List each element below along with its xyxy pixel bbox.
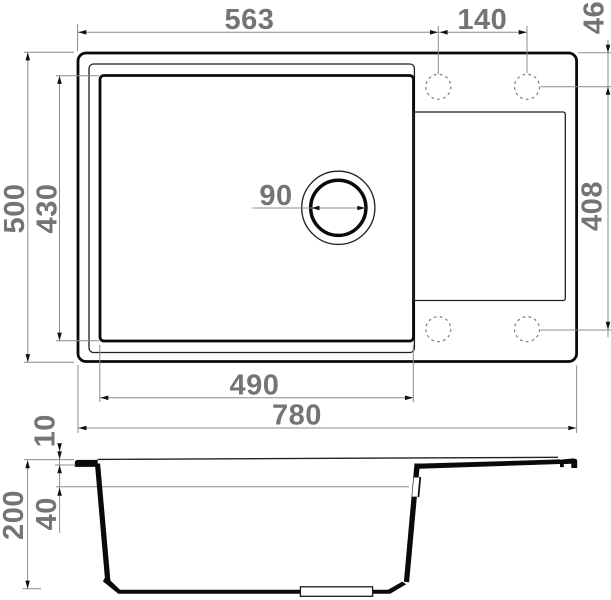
svg-text:46: 46 [579,1,611,34]
svg-text:563: 563 [225,4,275,36]
svg-text:430: 430 [31,184,63,234]
svg-text:140: 140 [457,4,507,36]
svg-text:500: 500 [0,184,31,234]
svg-text:780: 780 [272,400,322,432]
svg-text:10: 10 [29,414,61,447]
svg-text:40: 40 [31,497,63,530]
svg-text:490: 490 [230,370,280,402]
svg-text:408: 408 [577,181,609,231]
svg-text:90: 90 [259,180,292,212]
svg-text:200: 200 [0,490,30,540]
